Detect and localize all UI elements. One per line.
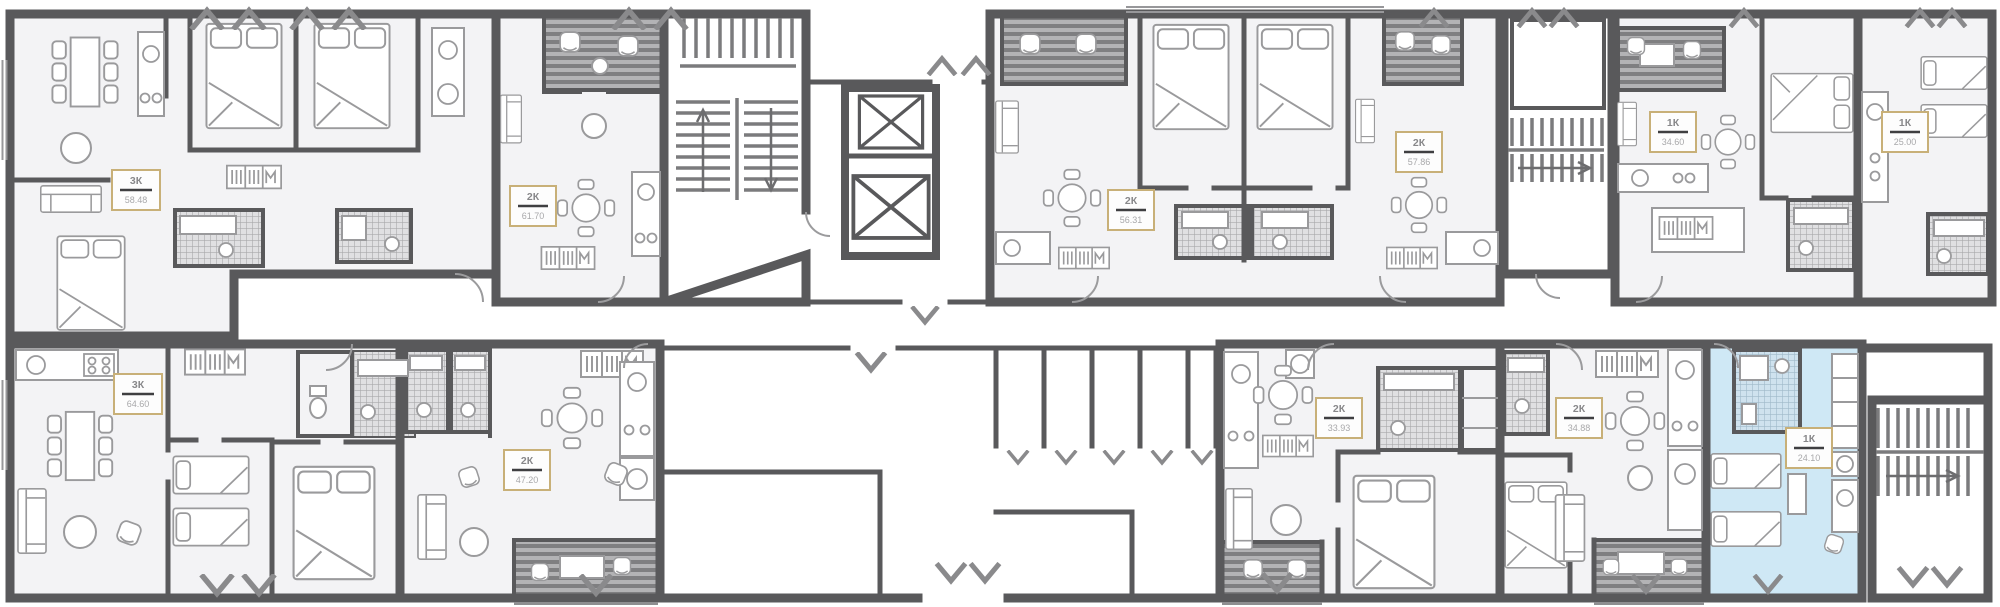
double-bed-icon xyxy=(294,467,375,579)
sofa-icon xyxy=(41,186,101,212)
svg-text:58.48: 58.48 xyxy=(125,195,148,205)
sink-icon xyxy=(143,46,159,62)
sink-icon xyxy=(1232,365,1250,383)
wardrobe-icon xyxy=(1596,351,1658,377)
single-bed-icon xyxy=(1921,105,1987,137)
closet-bottom-3 xyxy=(1462,368,1498,450)
armchair-icon xyxy=(1603,559,1619,575)
svg-text:2К: 2К xyxy=(1413,137,1426,149)
rug-icon xyxy=(61,133,91,163)
armchair-icon xyxy=(560,32,580,52)
toilet-icon xyxy=(1742,404,1756,424)
apartment-label-top-6[interactable]: 1К 25.00 xyxy=(1882,112,1928,152)
sink-icon xyxy=(385,237,399,251)
entrance-chevron-icon xyxy=(964,59,988,73)
sofa-icon xyxy=(501,95,522,143)
sofa-icon xyxy=(996,101,1019,153)
shower-icon xyxy=(1740,356,1768,380)
svg-text:33.93: 33.93 xyxy=(1328,423,1351,433)
bathtub-icon xyxy=(1934,220,1984,236)
svg-text:2К: 2К xyxy=(527,191,540,203)
svg-text:34.88: 34.88 xyxy=(1568,423,1591,433)
rug-icon xyxy=(460,528,488,556)
double-bed-icon xyxy=(314,24,389,128)
sink-icon xyxy=(1937,249,1951,263)
svg-text:2К: 2К xyxy=(1573,403,1586,415)
entrance-chevron-icon xyxy=(972,566,998,581)
armchair-icon xyxy=(1684,42,1701,59)
nightstand-icon xyxy=(1788,474,1806,514)
svg-text:1К: 1К xyxy=(1667,117,1680,129)
bathtub-icon xyxy=(455,356,485,370)
sofa-icon xyxy=(1556,495,1585,561)
loggia-table-icon xyxy=(1618,552,1664,574)
door-chevron-icon xyxy=(1009,452,1027,463)
wardrobe-icon xyxy=(227,166,281,189)
washer-icon xyxy=(438,84,458,104)
armchair-icon xyxy=(1076,34,1096,54)
kitchen-counter-icon xyxy=(138,32,164,116)
shower-icon xyxy=(342,216,366,240)
svg-text:47.20: 47.20 xyxy=(516,475,539,485)
stove-icon xyxy=(84,354,114,376)
sink-icon xyxy=(1799,241,1813,255)
armchair-icon xyxy=(1020,34,1040,54)
wardrobe-icon xyxy=(185,349,245,374)
armchair-icon xyxy=(1671,559,1687,575)
svg-text:2К: 2К xyxy=(1333,403,1346,415)
svg-text:3К: 3К xyxy=(132,379,145,391)
bathtub-icon xyxy=(410,356,442,370)
floor-plan-svg: 3К 58.48 2К 61.70 2К 56.31 2К 57.86 1К 3… xyxy=(0,0,2000,607)
sink-icon xyxy=(417,403,431,417)
armchair-icon xyxy=(1628,38,1645,55)
fridge-icon xyxy=(1668,450,1702,530)
entrance-chevron-icon xyxy=(930,59,954,73)
sofa-icon xyxy=(418,495,446,559)
double-bed-icon xyxy=(1771,74,1853,133)
svg-text:34.60: 34.60 xyxy=(1662,137,1685,147)
wardrobe-icon xyxy=(1387,247,1437,268)
double-bed-icon xyxy=(1354,476,1435,588)
elevator-icon xyxy=(859,96,922,148)
armchair-icon xyxy=(1396,32,1414,50)
sink-icon xyxy=(1867,104,1883,120)
bathtub-icon xyxy=(1182,212,1228,228)
double-bed-icon xyxy=(206,24,281,128)
door-chevron-icon xyxy=(1153,452,1171,463)
bathtub-icon xyxy=(1794,208,1848,224)
apartment-label-top-5[interactable]: 1К 34.60 xyxy=(1650,112,1696,152)
bathtub-icon xyxy=(1384,374,1454,390)
apartment-label-top-3[interactable]: 2К 56.31 xyxy=(1108,190,1154,230)
double-bed-icon xyxy=(57,236,124,330)
apartment-label-top-4[interactable]: 2К 57.86 xyxy=(1396,132,1442,172)
armchair-icon xyxy=(618,36,638,56)
wardrobe-icon xyxy=(1263,435,1313,456)
sink-icon xyxy=(1213,235,1227,249)
single-bed-icon xyxy=(1921,57,1987,89)
wardrobe-icon xyxy=(541,247,594,269)
single-bed-icon xyxy=(173,508,248,545)
svg-text:2К: 2К xyxy=(1125,195,1138,207)
armchair-icon xyxy=(1244,560,1262,578)
sink-icon xyxy=(1004,240,1020,256)
sink-icon xyxy=(1474,240,1490,256)
door-chevron-icon xyxy=(1193,452,1211,463)
sink-icon xyxy=(638,184,654,200)
armchair-icon xyxy=(614,558,631,575)
entrance-chevron-icon xyxy=(938,566,964,581)
apartment-label-top-1[interactable]: 3К 58.48 xyxy=(112,170,160,210)
apartment-label-bottom-3[interactable]: 2К 33.93 xyxy=(1316,398,1362,438)
svg-text:1К: 1К xyxy=(1803,433,1816,445)
single-bed-icon xyxy=(173,456,248,493)
single-bed-icon xyxy=(1711,512,1781,546)
bathtub-icon xyxy=(180,216,236,234)
apartment-label-bottom-4[interactable]: 2К 34.88 xyxy=(1556,398,1602,438)
svg-text:57.86: 57.86 xyxy=(1408,157,1431,167)
double-bed-icon xyxy=(1257,25,1332,129)
floor-plan: 3К 58.48 2К 61.70 2К 56.31 2К 57.86 1К 3… xyxy=(0,0,2000,607)
apartment-label-top-2[interactable]: 2К 61.70 xyxy=(510,186,556,226)
toilet-icon xyxy=(310,386,326,396)
svg-text:25.00: 25.00 xyxy=(1894,137,1917,147)
bathtub-icon xyxy=(1508,358,1544,372)
sink-icon xyxy=(27,356,45,374)
svg-text:24.10: 24.10 xyxy=(1798,453,1821,463)
sink-icon xyxy=(1515,399,1529,413)
sink-icon xyxy=(461,403,475,417)
rug-icon xyxy=(1271,505,1301,535)
entrance-chevron-icon xyxy=(913,308,936,322)
bathtub-icon xyxy=(1262,212,1308,228)
side-table-icon xyxy=(592,58,608,74)
rug-icon xyxy=(1628,466,1652,490)
sofa-icon xyxy=(1356,99,1375,142)
sink-icon xyxy=(219,243,233,257)
sink-icon xyxy=(1391,421,1405,435)
door-chevron-icon xyxy=(1105,452,1123,463)
sofa-icon xyxy=(1226,489,1252,549)
single-bed-icon xyxy=(1711,454,1781,488)
armchair-icon xyxy=(1432,36,1450,54)
sink-icon xyxy=(628,373,646,391)
svg-text:56.31: 56.31 xyxy=(1120,215,1143,225)
entrance-chevron-icon xyxy=(858,355,883,370)
loggia-bottom-3 xyxy=(1222,542,1322,598)
svg-text:61.70: 61.70 xyxy=(522,211,545,221)
svg-text:64.60: 64.60 xyxy=(127,399,150,409)
apartment-label-bottom-1[interactable]: 3К 64.60 xyxy=(114,374,162,414)
door-swing-icon xyxy=(806,212,830,236)
apartment-label-bottom-2[interactable]: 2К 47.20 xyxy=(504,450,550,490)
sink-icon xyxy=(1676,361,1694,379)
sink-icon xyxy=(1632,170,1648,186)
armchair-icon xyxy=(582,114,606,138)
sink-icon xyxy=(361,405,375,419)
wardrobe-icon xyxy=(1059,247,1109,268)
bathtub-icon xyxy=(358,360,408,376)
rug-icon xyxy=(64,516,96,548)
apartment-label-bottom-5[interactable]: 1К 24.10 xyxy=(1786,428,1832,468)
dining-table-icon xyxy=(48,412,112,480)
door-chevron-icon xyxy=(1057,452,1075,463)
svg-text:1К: 1К xyxy=(1899,117,1912,129)
svg-text:2К: 2К xyxy=(521,455,534,467)
elevator-icon xyxy=(853,176,928,238)
sofa-icon xyxy=(18,489,46,553)
sink-icon xyxy=(1837,490,1853,506)
stairwell-floor-2 xyxy=(1504,14,1612,274)
sofa-icon xyxy=(1618,102,1637,145)
sink-icon xyxy=(439,41,457,59)
wardrobe-icon xyxy=(1659,217,1712,239)
dining-table-icon xyxy=(52,38,117,107)
armchair-icon xyxy=(532,564,549,581)
sink-icon xyxy=(1273,235,1287,249)
svg-text:3К: 3К xyxy=(130,175,143,187)
double-bed-icon xyxy=(1153,25,1228,129)
sink-icon xyxy=(1775,359,1789,373)
